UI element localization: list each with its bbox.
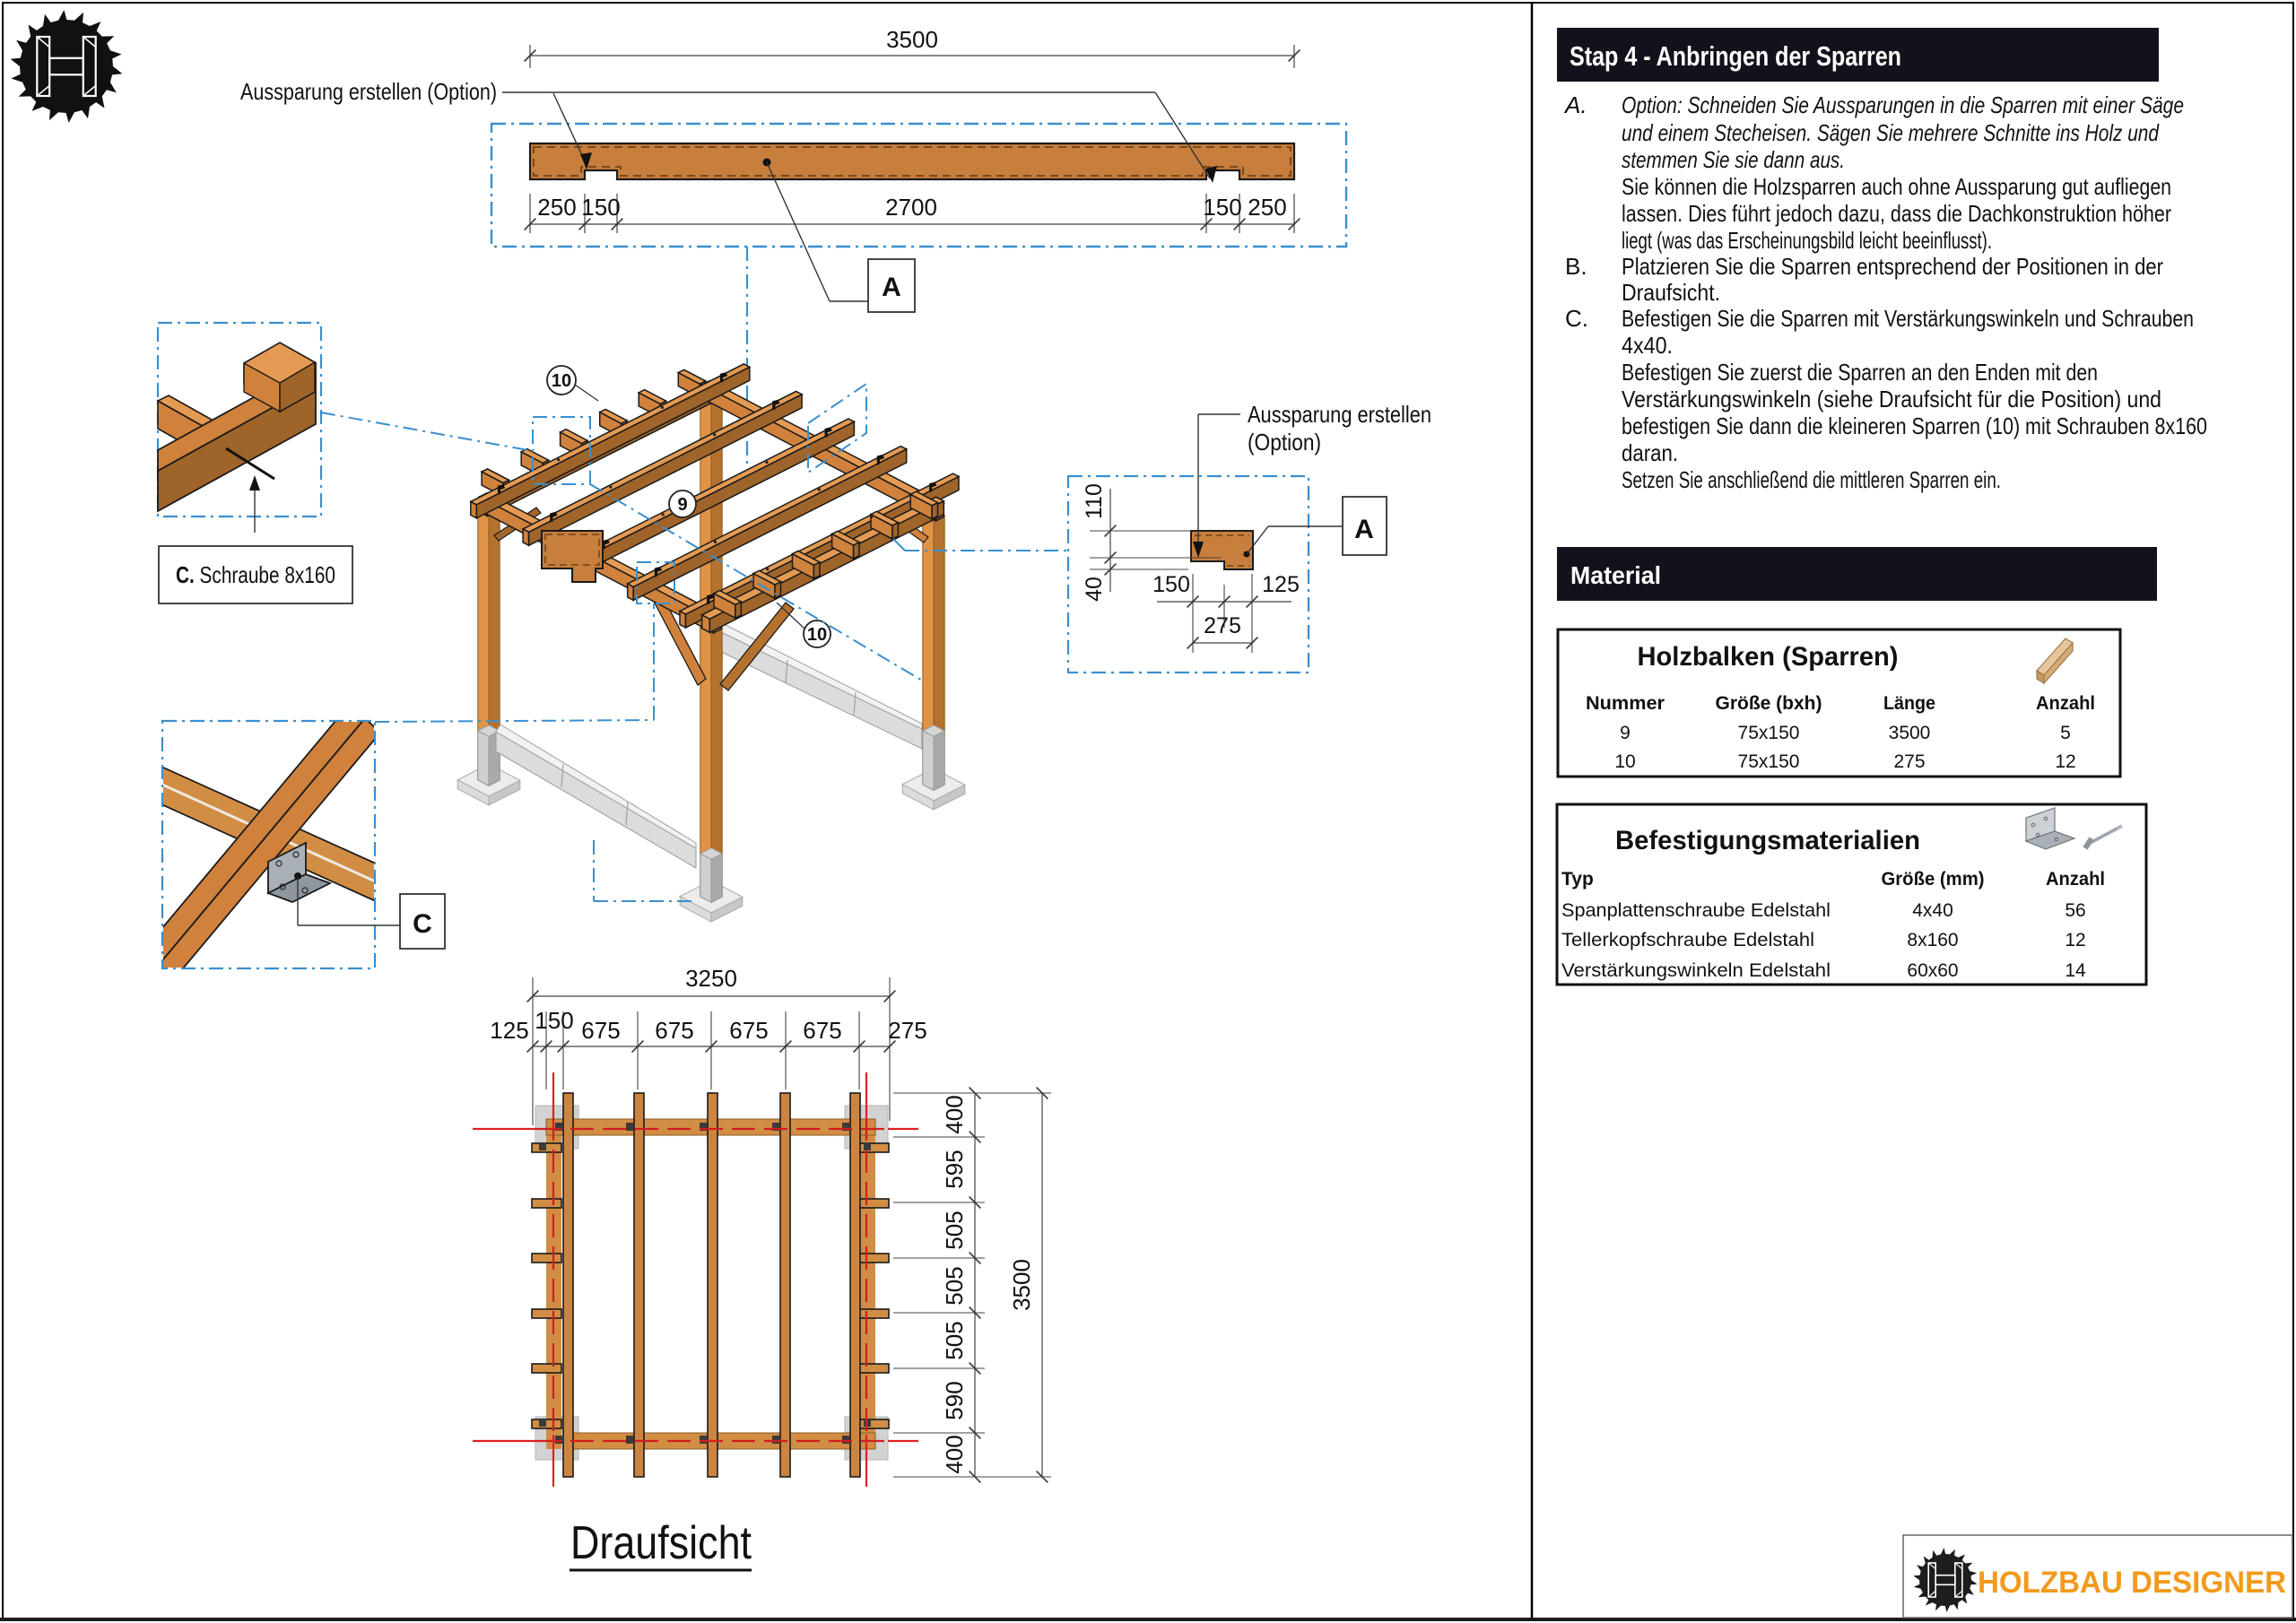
svg-text:A.: A. — [1563, 91, 1587, 118]
svg-text:lassen. Dies führt jedoch dazu: lassen. Dies führt jedoch dazu, dass die… — [1622, 200, 2171, 227]
svg-text:A: A — [1354, 515, 1374, 544]
svg-text:12: 12 — [2055, 751, 2075, 772]
svg-text:Draufsicht.: Draufsicht. — [1622, 279, 1720, 306]
svg-text:Verstärkungswinkeln (siehe Dra: Verstärkungswinkeln (siehe Draufsicht fü… — [1622, 386, 2161, 412]
svg-text:HOLZBAU DESIGNER: HOLZBAU DESIGNER — [1978, 1566, 2286, 1600]
svg-text:14: 14 — [2065, 960, 2086, 981]
svg-text:250: 250 — [537, 194, 576, 221]
svg-text:liegt (was das Erscheinungsbil: liegt (was das Erscheinungsbild leicht b… — [1622, 227, 1992, 254]
svg-text:Befestigen Sie zuerst die Spar: Befestigen Sie zuerst die Sparren an den… — [1622, 359, 2098, 386]
svg-text:3500: 3500 — [1889, 723, 1931, 743]
svg-text:4x40.: 4x40. — [1622, 332, 1673, 359]
svg-text:125: 125 — [490, 1017, 528, 1044]
svg-text:Befestigen Sie die Sparren mit: Befestigen Sie die Sparren mit Verstärku… — [1622, 305, 2194, 332]
svg-text:75x150: 75x150 — [1738, 751, 1800, 772]
svg-text:Spanplattenschraube Edelstahl: Spanplattenschraube Edelstahl — [1561, 900, 1831, 921]
svg-text:595: 595 — [941, 1150, 968, 1188]
svg-text:Stap 4 - Anbringen der Sparren: Stap 4 - Anbringen der Sparren — [1570, 40, 1901, 72]
svg-text:Größe (mm): Größe (mm) — [1882, 869, 1985, 890]
svg-text:Größe (bxh): Größe (bxh) — [1716, 693, 1822, 714]
svg-text:Platzieren Sie die Sparren ent: Platzieren Sie die Sparren entsprechend … — [1622, 253, 2163, 280]
svg-text:400: 400 — [941, 1095, 968, 1133]
svg-text:10: 10 — [807, 625, 827, 645]
svg-text:Material: Material — [1570, 561, 1661, 589]
svg-text:150: 150 — [581, 194, 620, 221]
svg-text:C: C — [413, 909, 432, 939]
svg-text:4x40: 4x40 — [1912, 900, 1953, 921]
svg-text:Befestigungsmaterialien: Befestigungsmaterialien — [1615, 826, 1920, 855]
svg-text:C. Schraube 8x160: C. Schraube 8x160 — [176, 561, 335, 588]
svg-text:150: 150 — [1152, 572, 1190, 597]
svg-text:8x160: 8x160 — [1907, 930, 1958, 950]
svg-text:110: 110 — [1082, 483, 1107, 519]
svg-text:150: 150 — [535, 1007, 573, 1034]
svg-text:Verstärkungswinkeln Edelstahl: Verstärkungswinkeln Edelstahl — [1561, 960, 1831, 981]
svg-text:Draufsicht: Draufsicht — [570, 1517, 752, 1569]
svg-text:150: 150 — [1203, 194, 1241, 221]
svg-text:und einem Stecheisen. Sägen Si: und einem Stecheisen. Sägen Sie mehrere … — [1622, 119, 2160, 146]
svg-text:Holzbalken (Sparren): Holzbalken (Sparren) — [1638, 642, 1899, 672]
svg-text:Setzen Sie anschließend die mi: Setzen Sie anschließend die mittleren Sp… — [1622, 466, 2001, 493]
svg-text:75x150: 75x150 — [1738, 723, 1800, 743]
svg-text:3250: 3250 — [685, 965, 737, 992]
svg-text:Option: Schneiden Sie Aussparu: Option: Schneiden Sie Aussparungen in di… — [1622, 91, 2184, 118]
svg-text:675: 675 — [729, 1017, 768, 1044]
svg-text:3500: 3500 — [1008, 1259, 1035, 1311]
svg-text:675: 675 — [581, 1017, 620, 1044]
svg-text:Sie können die Holzsparren auc: Sie können die Holzsparren auch ohne Aus… — [1622, 173, 2171, 200]
svg-text:275: 275 — [1893, 751, 1925, 772]
svg-text:(Option): (Option) — [1248, 429, 1321, 456]
svg-text:675: 675 — [655, 1017, 693, 1044]
svg-text:590: 590 — [941, 1381, 968, 1419]
svg-text:56: 56 — [2065, 900, 2085, 921]
svg-text:Aussparung erstellen: Aussparung erstellen — [1248, 401, 1431, 428]
svg-text:Anzahl: Anzahl — [2046, 869, 2105, 890]
svg-text:275: 275 — [1204, 613, 1241, 638]
svg-text:befestigen Sie dann die kleine: befestigen Sie dann die kleineren Sparre… — [1622, 412, 2207, 439]
svg-text:Tellerkopfschraube Edelstahl: Tellerkopfschraube Edelstahl — [1561, 930, 1814, 950]
svg-text:125: 125 — [1262, 572, 1300, 597]
svg-text:505: 505 — [941, 1321, 968, 1359]
svg-text:40: 40 — [1082, 577, 1107, 602]
svg-text:12: 12 — [2065, 930, 2085, 950]
svg-text:9: 9 — [1620, 723, 1631, 743]
svg-text:Anzahl: Anzahl — [2036, 693, 2095, 714]
svg-text:A: A — [882, 273, 901, 302]
svg-text:Aussparung erstellen (Option): Aussparung erstellen (Option) — [240, 78, 497, 105]
svg-text:60x60: 60x60 — [1907, 960, 1958, 981]
svg-text:10: 10 — [1614, 751, 1635, 772]
svg-text:250: 250 — [1248, 194, 1286, 221]
svg-text:400: 400 — [941, 1435, 968, 1473]
svg-text:2700: 2700 — [885, 194, 937, 221]
svg-text:Typ: Typ — [1561, 869, 1594, 890]
svg-text:275: 275 — [888, 1017, 926, 1044]
svg-text:10: 10 — [552, 371, 571, 391]
svg-text:505: 505 — [941, 1211, 968, 1249]
svg-text:3500: 3500 — [886, 26, 938, 53]
svg-text:675: 675 — [803, 1017, 841, 1044]
svg-text:505: 505 — [941, 1266, 968, 1305]
svg-text:9: 9 — [677, 495, 687, 515]
svg-text:stemmen Sie sie dann aus.: stemmen Sie sie dann aus. — [1622, 146, 1845, 173]
svg-text:Nummer: Nummer — [1586, 693, 1665, 714]
svg-text:C.: C. — [1565, 305, 1588, 332]
svg-text:daran.: daran. — [1622, 439, 1678, 466]
svg-text:B.: B. — [1565, 253, 1587, 280]
svg-text:5: 5 — [2060, 723, 2071, 743]
svg-text:Länge: Länge — [1883, 693, 1935, 714]
